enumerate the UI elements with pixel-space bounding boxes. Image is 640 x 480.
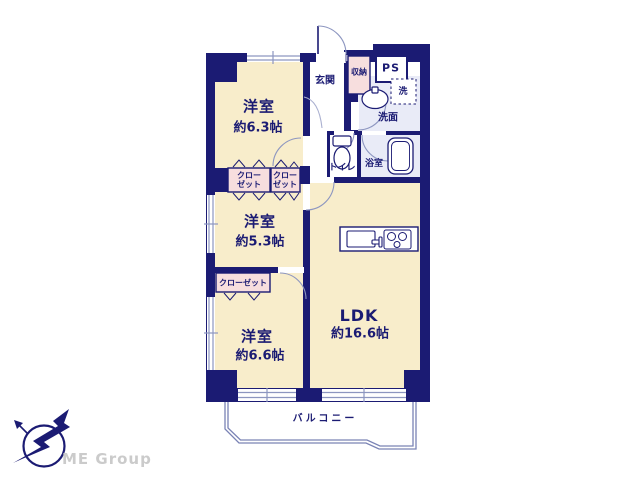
closet-2-line1: クロー xyxy=(273,171,297,180)
closet-1-line2: ゼット xyxy=(237,180,261,189)
laundry-label: 洗 xyxy=(398,87,407,97)
window-balcony-left xyxy=(238,388,296,402)
compass-needle xyxy=(19,425,28,434)
toilet-label: トイレ xyxy=(328,163,355,173)
room-6-3-size: 約6.3帖 xyxy=(233,122,282,137)
stove-burners-icon xyxy=(384,230,411,249)
ldk-name: LDK xyxy=(340,307,379,325)
balcony-label: バルコニー xyxy=(293,413,358,425)
bathtub-icon xyxy=(388,138,413,174)
closet-2-label: クローゼット xyxy=(273,171,297,189)
closet-1-line1: クロー xyxy=(237,171,261,180)
storage-label: 収納 xyxy=(351,67,367,76)
entrance-door-arc xyxy=(318,26,346,54)
ldk-floor xyxy=(310,183,420,388)
closet-3-label: クローゼット xyxy=(219,278,267,287)
entrance-label: 玄関 xyxy=(315,75,335,87)
closet-2-line2: ゼット xyxy=(273,180,297,189)
balcony-outline xyxy=(225,402,416,449)
company-name-text: ME Group xyxy=(62,450,152,468)
room-6-6-size: 約6.6帖 xyxy=(235,350,284,365)
pipe-space-label: PS xyxy=(382,63,400,76)
floor-plan-page: 洋室 約6.3帖 洋室 約5.3帖 洋室 約6.6帖 LDK 約16.6帖 玄関… xyxy=(0,0,640,480)
ldk-size: 約16.6帖 xyxy=(331,328,389,343)
room-5-3-name: 洋室 xyxy=(244,213,276,230)
bathroom-label: 浴室 xyxy=(365,159,383,169)
room-6-3-name: 洋室 xyxy=(243,98,275,115)
floor-plan-drawing xyxy=(0,0,640,480)
washroom-label: 洗面 xyxy=(378,112,398,124)
closet-1-label: クローゼット xyxy=(237,171,261,189)
room-6-6-name: 洋室 xyxy=(241,328,273,345)
room-5-3-size: 約5.3帖 xyxy=(235,236,284,251)
kitchen-counter xyxy=(340,227,418,251)
window-balcony-right xyxy=(322,388,406,402)
